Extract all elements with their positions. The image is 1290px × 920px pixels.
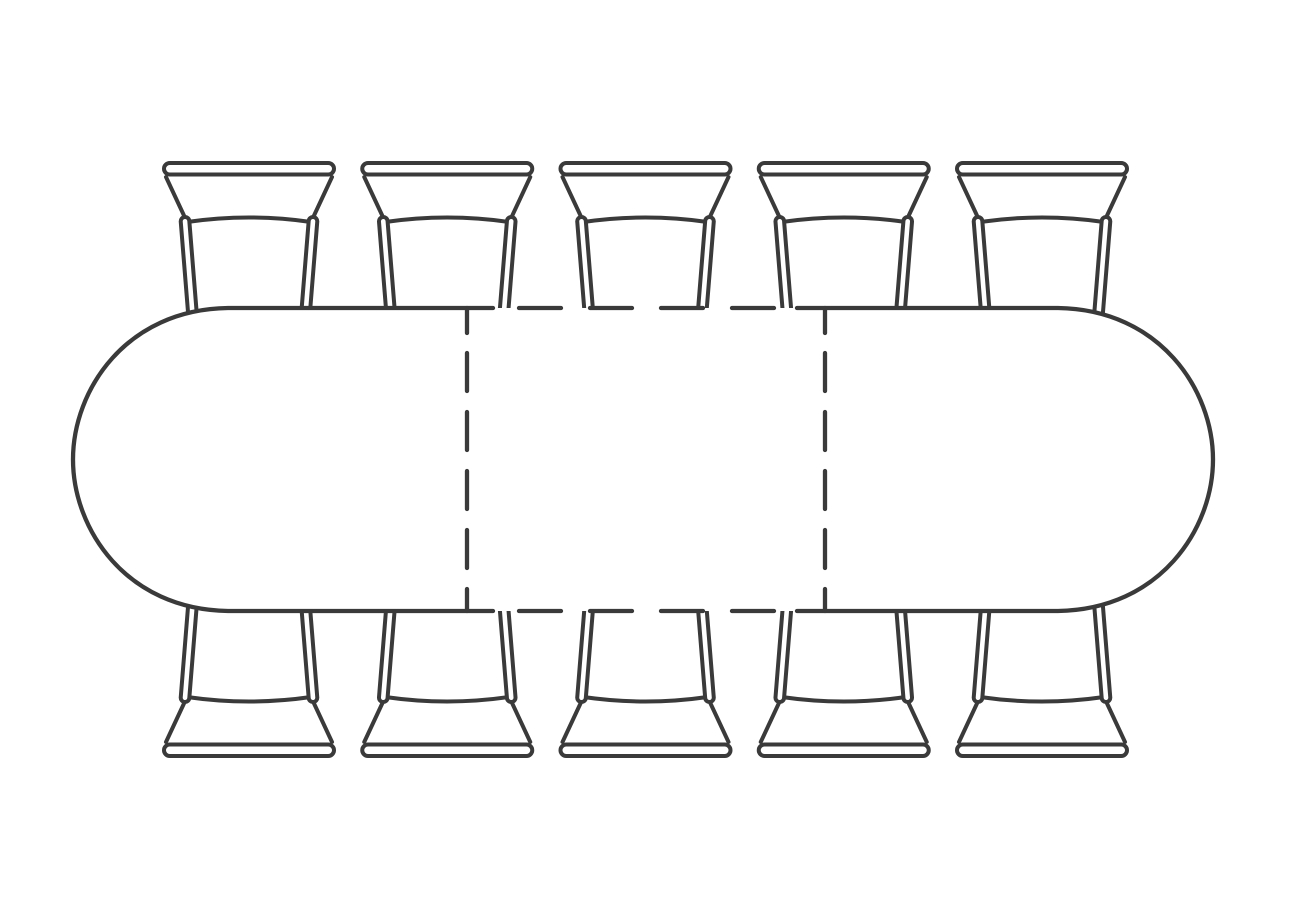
chair-bottom-1 [164, 602, 334, 756]
chair-top-4 [759, 163, 929, 317]
table-plan-svg [0, 0, 1290, 920]
chair-bottom-5 [957, 602, 1127, 756]
chair-row-top [164, 163, 1127, 317]
chair-row-bottom [164, 602, 1127, 756]
chair-bottom-3 [561, 602, 731, 756]
chair-top-2 [362, 163, 532, 317]
chair-top-3 [561, 163, 731, 317]
chair-top-1 [164, 163, 334, 317]
chair-top-5 [957, 163, 1127, 317]
chair-bottom-2 [362, 602, 532, 756]
table-top-surface [73, 308, 1213, 611]
chair-bottom-4 [759, 602, 929, 756]
floor-plan [0, 0, 1290, 920]
